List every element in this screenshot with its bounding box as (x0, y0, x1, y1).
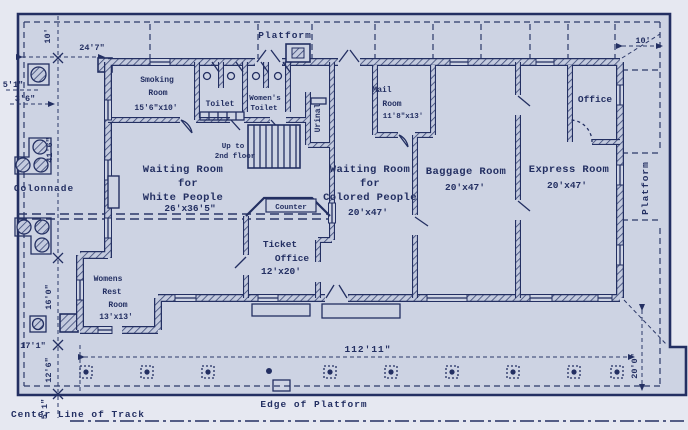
window (77, 280, 84, 300)
dim-col-spacing: 3'6" (15, 94, 35, 104)
counter-label: Counter (275, 204, 307, 212)
window (617, 245, 624, 265)
womens-rest-label3: Room (108, 301, 127, 310)
womens-toilet-label: Women's (249, 95, 281, 103)
window (598, 295, 612, 302)
edge-of-platform-label: Edge of Platform (260, 399, 367, 410)
corner-pier (60, 314, 78, 332)
dim-south-platform: 12'6" (44, 357, 54, 383)
bench (108, 176, 119, 208)
stair-note: Up to (222, 143, 245, 151)
express-room-dims: 20'x47' (547, 180, 587, 191)
dim-top-platform: 10' (43, 28, 53, 43)
waiting-colored-label: Waiting Room (330, 164, 410, 176)
dim-west-platform: 17'1" (20, 341, 46, 351)
mail-room-dims: 11'8"x13' (383, 113, 424, 121)
smoking-room-dims: 15'6"x10' (134, 104, 177, 113)
column (35, 220, 49, 234)
express-room-label: Express Room (529, 164, 609, 176)
dim-col-offset: 5'1" (3, 80, 23, 90)
column (16, 158, 30, 172)
stairs (248, 125, 300, 168)
dim-womens-wing: 16'0" (44, 284, 54, 310)
waiting-white-label: Waiting Room (143, 164, 223, 176)
window (175, 295, 196, 302)
window (258, 295, 278, 302)
womens-rest-label2: Rest (102, 288, 121, 297)
mail-room-label2: Room (382, 100, 401, 109)
dim-right-platform: 10' (635, 36, 650, 46)
waiting-colored-label3: Colored People (323, 192, 417, 204)
window (536, 59, 554, 66)
window (450, 59, 468, 66)
urinal-label: Urinal (314, 103, 323, 132)
platform-top-label: Platform (258, 30, 312, 41)
window (105, 218, 112, 238)
chimney-flue (292, 48, 304, 58)
ticket-office-label: Ticket (263, 239, 297, 250)
column (35, 238, 49, 252)
waiting-white-label2: for (178, 178, 198, 190)
window (150, 59, 170, 66)
ticket-office-label2: Office (275, 253, 310, 264)
colonnade-label: Colonnade (14, 183, 74, 194)
dim-approach: 24'7" (79, 43, 105, 53)
waiting-colored-label2: for (360, 178, 380, 190)
stair-note2: 2nd floor (215, 153, 256, 161)
ticket-window-colored (329, 203, 336, 223)
dim-building-length: 112'11" (345, 344, 392, 355)
waiting-white-dims: 26'x36'5" (164, 203, 215, 214)
womens-rest-label: Womens (94, 275, 123, 284)
center-line-of-track-label: Center Line of Track (11, 409, 145, 420)
womens-toilet-label2: Toilet (250, 105, 277, 113)
column (31, 67, 46, 82)
window (530, 295, 552, 302)
smoking-room-label: Smoking (140, 76, 174, 85)
platform-right-label: Platform (640, 161, 651, 215)
womens-rest-dims: 13'x13' (99, 313, 133, 322)
waiting-colored-dims: 20'x47' (348, 207, 388, 218)
mail-room-label: Mail (372, 86, 391, 95)
toilet-label: Toilet (206, 100, 235, 109)
dim-se-platform: 20'0" (630, 353, 640, 379)
blueprint-sheet: Smoking Room 15'6"x10' Toilet Women's To… (0, 0, 688, 430)
window (105, 100, 112, 120)
dim-track-offset: 5'1" (40, 399, 50, 419)
window (98, 327, 112, 334)
post-symbol (266, 368, 272, 374)
window (427, 295, 467, 302)
window (617, 85, 624, 105)
column (33, 319, 44, 330)
smoking-room-label2: Room (148, 89, 167, 98)
office-label: Office (578, 94, 613, 105)
floor-plan-canvas: Smoking Room 15'6"x10' Toilet Women's To… (0, 0, 688, 430)
baggage-room-label: Baggage Room (426, 166, 506, 178)
dim-west-wall: 41'6" (45, 137, 55, 163)
ticket-office-dims: 12'x20' (261, 266, 301, 277)
window (617, 165, 624, 185)
column (17, 220, 31, 234)
baggage-room-dims: 20'x47' (445, 182, 485, 193)
